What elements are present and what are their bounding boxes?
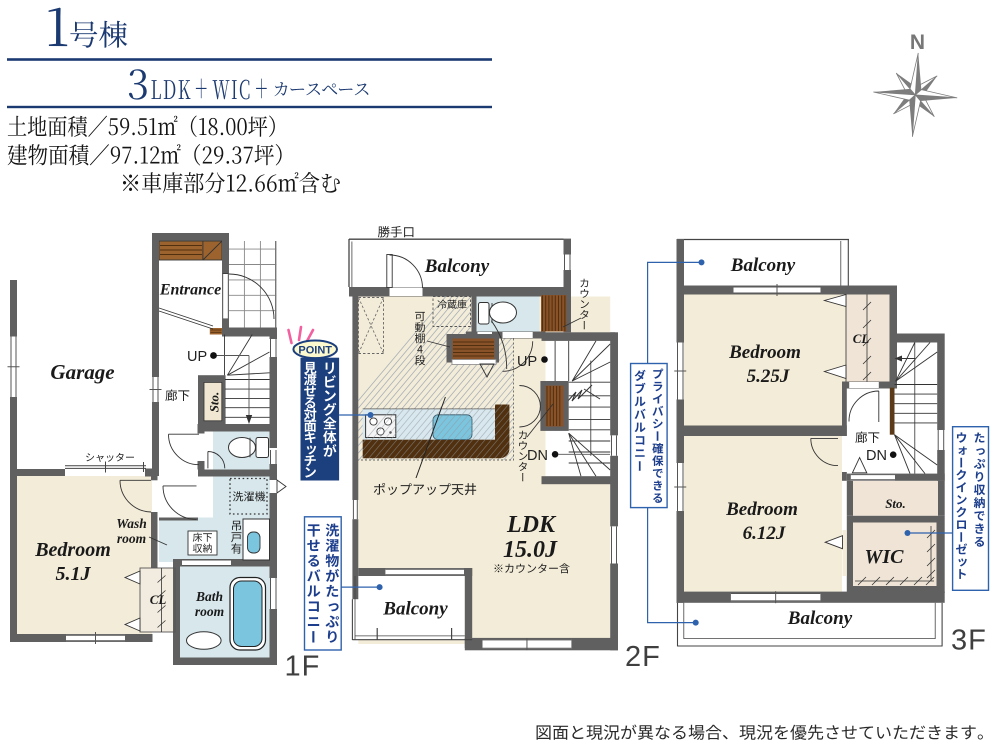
svg-text:Balcony: Balcony — [424, 256, 490, 277]
svg-text:UP: UP — [187, 349, 207, 365]
svg-text:WIC: WIC — [865, 546, 905, 568]
svg-text:Balcony: Balcony — [382, 599, 448, 620]
svg-text:6.12J: 6.12J — [743, 523, 786, 544]
svg-text:2F: 2F — [625, 641, 661, 673]
svg-text:3F: 3F — [951, 625, 987, 657]
svg-text:1F: 1F — [285, 651, 321, 683]
svg-text:Entrance: Entrance — [159, 282, 221, 299]
svg-text:UP: UP — [517, 354, 537, 370]
svg-text:LDK: LDK — [506, 512, 557, 538]
svg-text:5.25J: 5.25J — [747, 366, 790, 387]
svg-text:Bath: Bath — [195, 589, 223, 604]
svg-text:Balcony: Balcony — [730, 255, 796, 276]
svg-text:5.1J: 5.1J — [56, 563, 92, 585]
svg-text:CL: CL — [150, 592, 167, 607]
svg-text:Balcony: Balcony — [787, 608, 853, 629]
svg-text:N: N — [910, 31, 925, 54]
svg-text:Bedroom: Bedroom — [725, 499, 798, 520]
svg-text:Sto.: Sto. — [885, 496, 906, 511]
svg-text:DN: DN — [866, 448, 887, 464]
svg-text:room: room — [195, 604, 224, 619]
svg-text:Sto.: Sto. — [207, 392, 222, 413]
svg-text:CL: CL — [853, 331, 870, 346]
svg-text:POINT: POINT — [298, 344, 332, 356]
svg-text:Wash: Wash — [116, 516, 147, 531]
svg-text:15.0J: 15.0J — [503, 537, 558, 563]
svg-text:Bedroom: Bedroom — [728, 342, 801, 363]
svg-text:Garage: Garage — [50, 360, 114, 384]
svg-text:DN: DN — [527, 448, 548, 464]
svg-text:Bedroom: Bedroom — [34, 539, 111, 561]
svg-text:room: room — [117, 531, 146, 546]
